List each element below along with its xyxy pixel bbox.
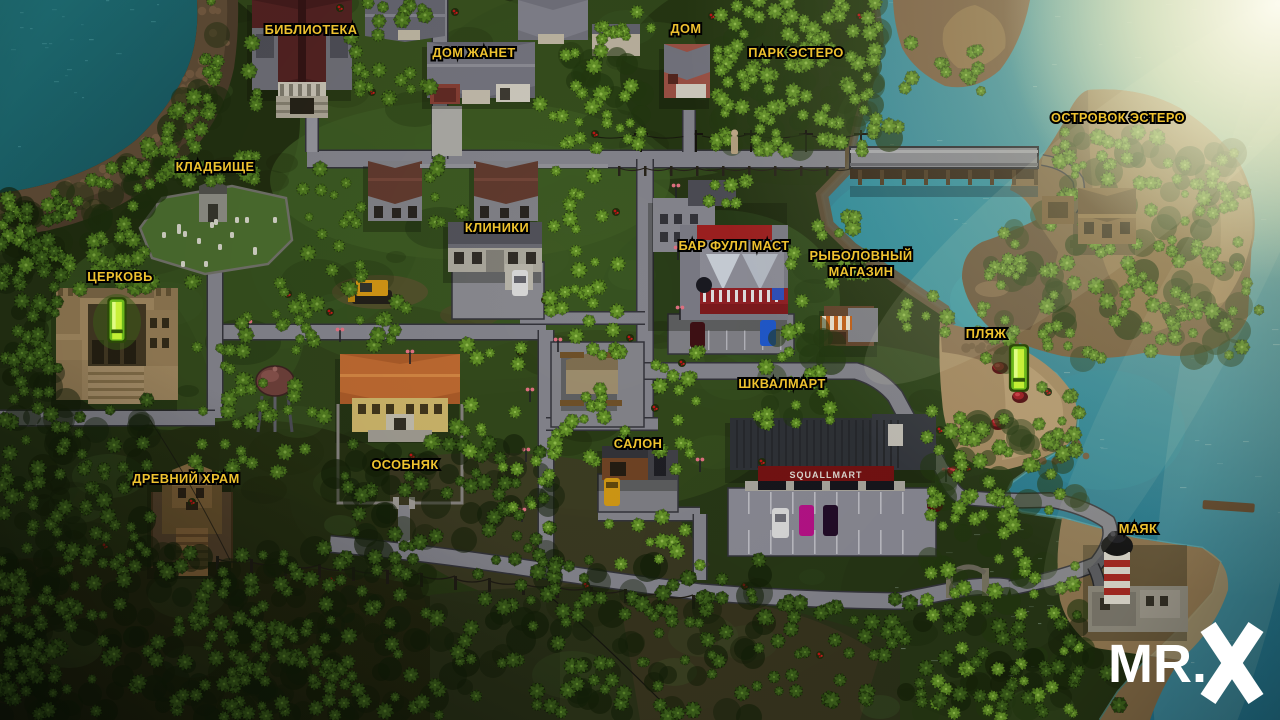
svg-text:ЦЕРКОВЬ: ЦЕРКОВЬ xyxy=(87,269,152,284)
svg-text:ОСТРОВОК ЭСТЕРО: ОСТРОВОК ЭСТЕРО xyxy=(1051,110,1185,125)
svg-text:МАЯК: МАЯК xyxy=(1119,521,1158,536)
svg-text:ДОМ: ДОМ xyxy=(671,21,702,36)
svg-text:ПЛЯЖ: ПЛЯЖ xyxy=(966,326,1007,341)
svg-text:БИБЛИОТЕКА: БИБЛИОТЕКА xyxy=(265,22,358,37)
svg-text:ПАРК ЭСТЕРО: ПАРК ЭСТЕРО xyxy=(748,45,843,60)
svg-text:БАР ФУЛЛ МАСТ: БАР ФУЛЛ МАСТ xyxy=(679,238,790,253)
svg-text:МАГАЗИН: МАГАЗИН xyxy=(829,264,894,279)
svg-text:КЛАДБИЩЕ: КЛАДБИЩЕ xyxy=(176,159,255,174)
svg-text:ШКВАЛМАРТ: ШКВАЛМАРТ xyxy=(738,376,825,391)
svg-text:САЛОН: САЛОН xyxy=(614,436,663,451)
svg-text:MR.: MR. xyxy=(1108,634,1207,694)
svg-text:КЛИНИКИ: КЛИНИКИ xyxy=(465,220,529,235)
svg-text:ДРЕВНИЙ ХРАМ: ДРЕВНИЙ ХРАМ xyxy=(132,471,239,486)
svg-text:ДОМ ЖАНЕТ: ДОМ ЖАНЕТ xyxy=(432,45,515,60)
svg-text:РЫБОЛОВНЫЙ: РЫБОЛОВНЫЙ xyxy=(809,248,912,263)
svg-text:ОСОБНЯК: ОСОБНЯК xyxy=(371,457,438,472)
